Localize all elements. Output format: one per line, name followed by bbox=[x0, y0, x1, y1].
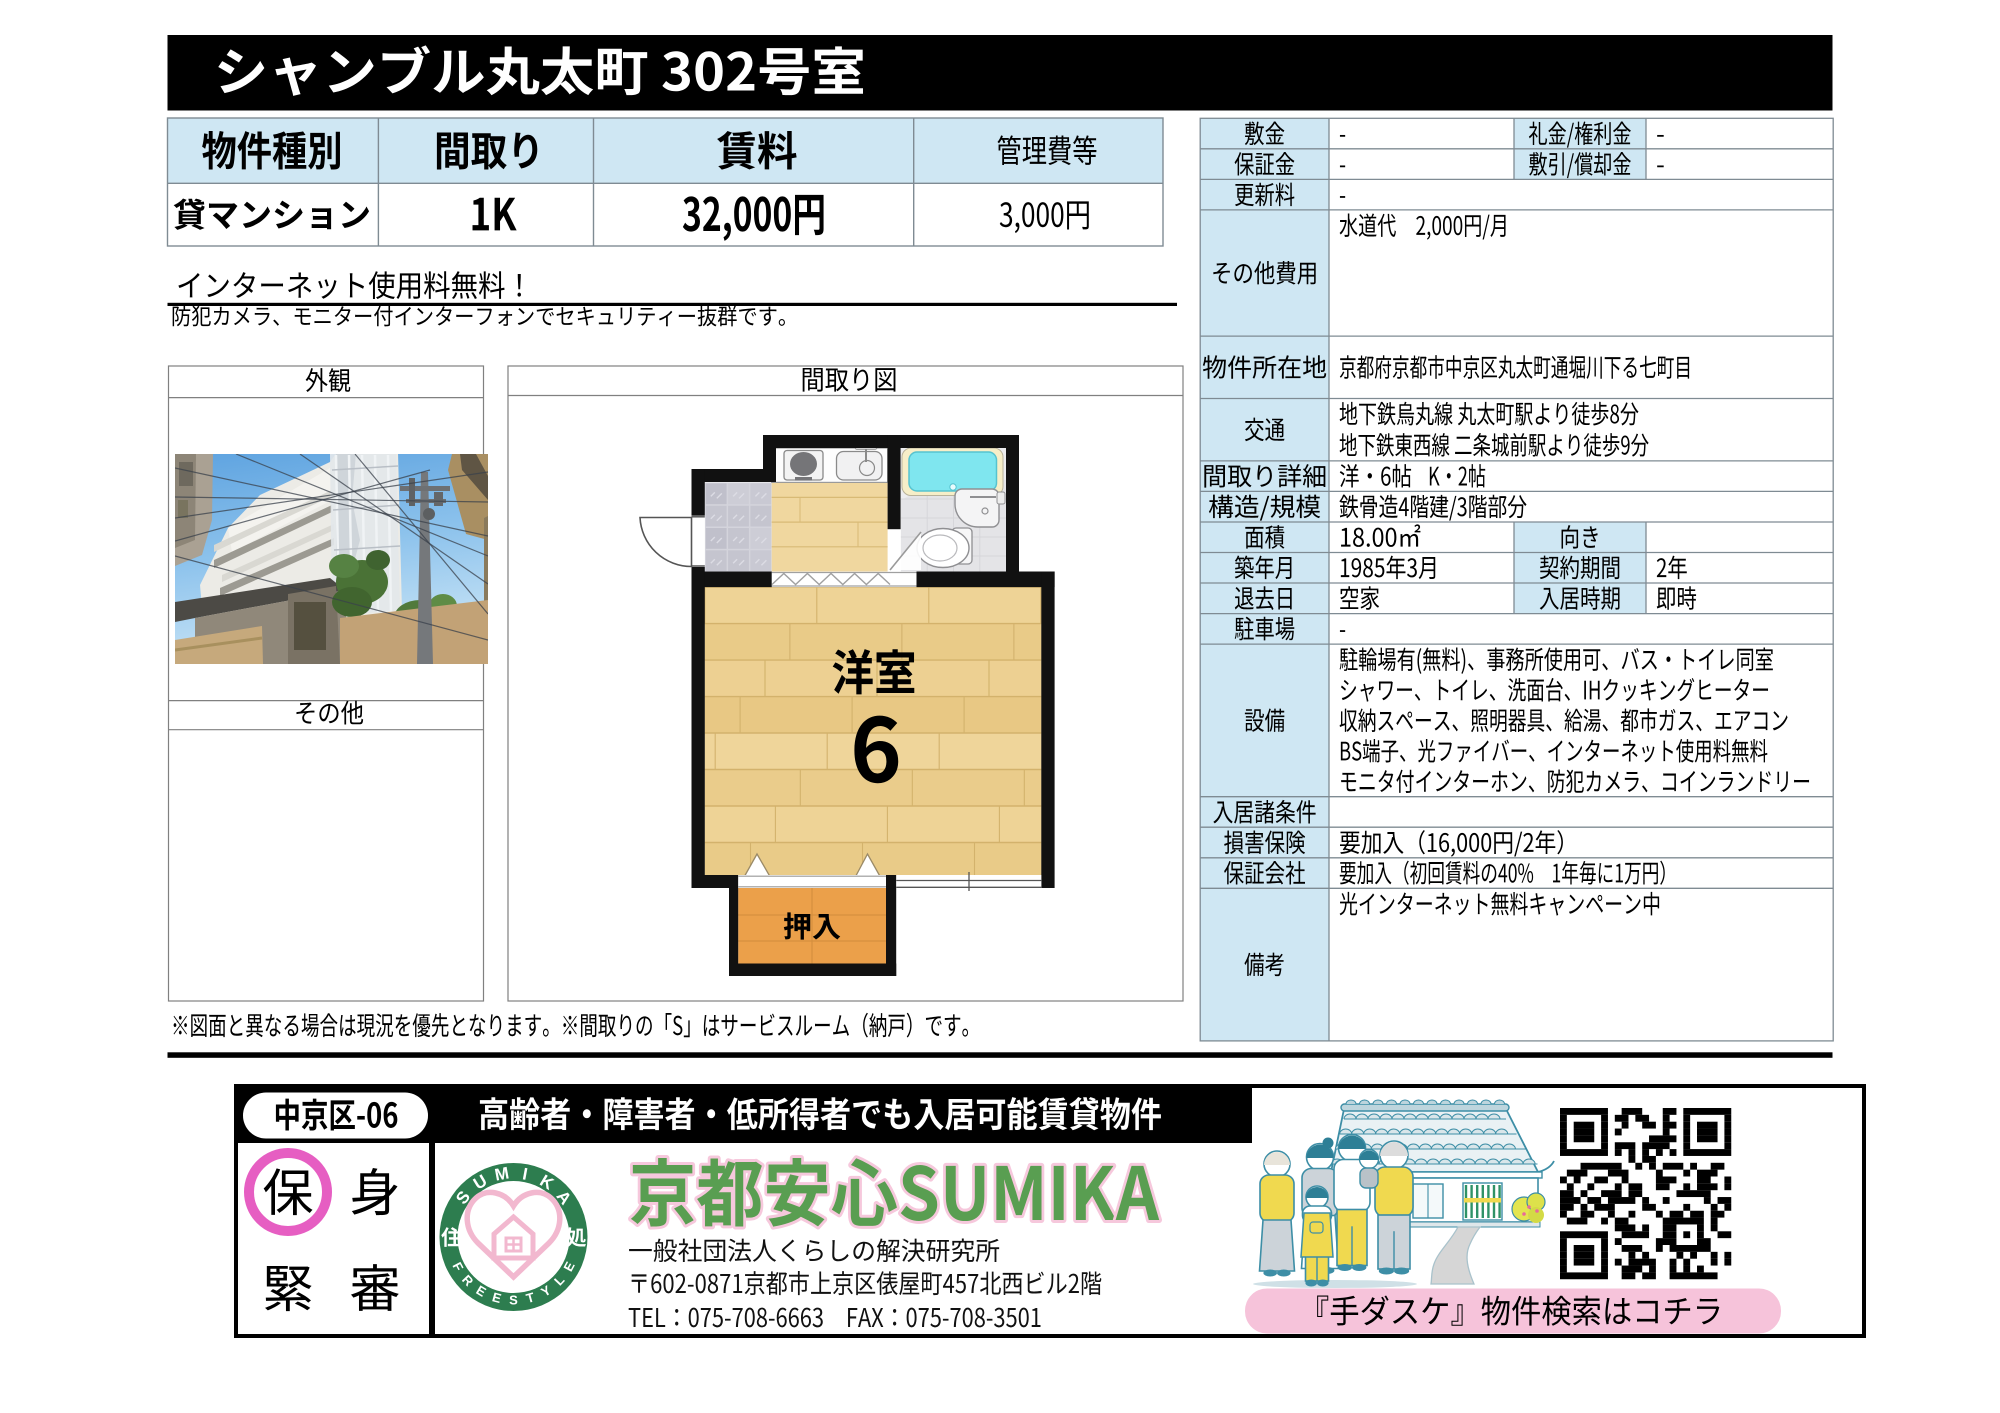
svg-text:S: S bbox=[509, 1293, 518, 1308]
